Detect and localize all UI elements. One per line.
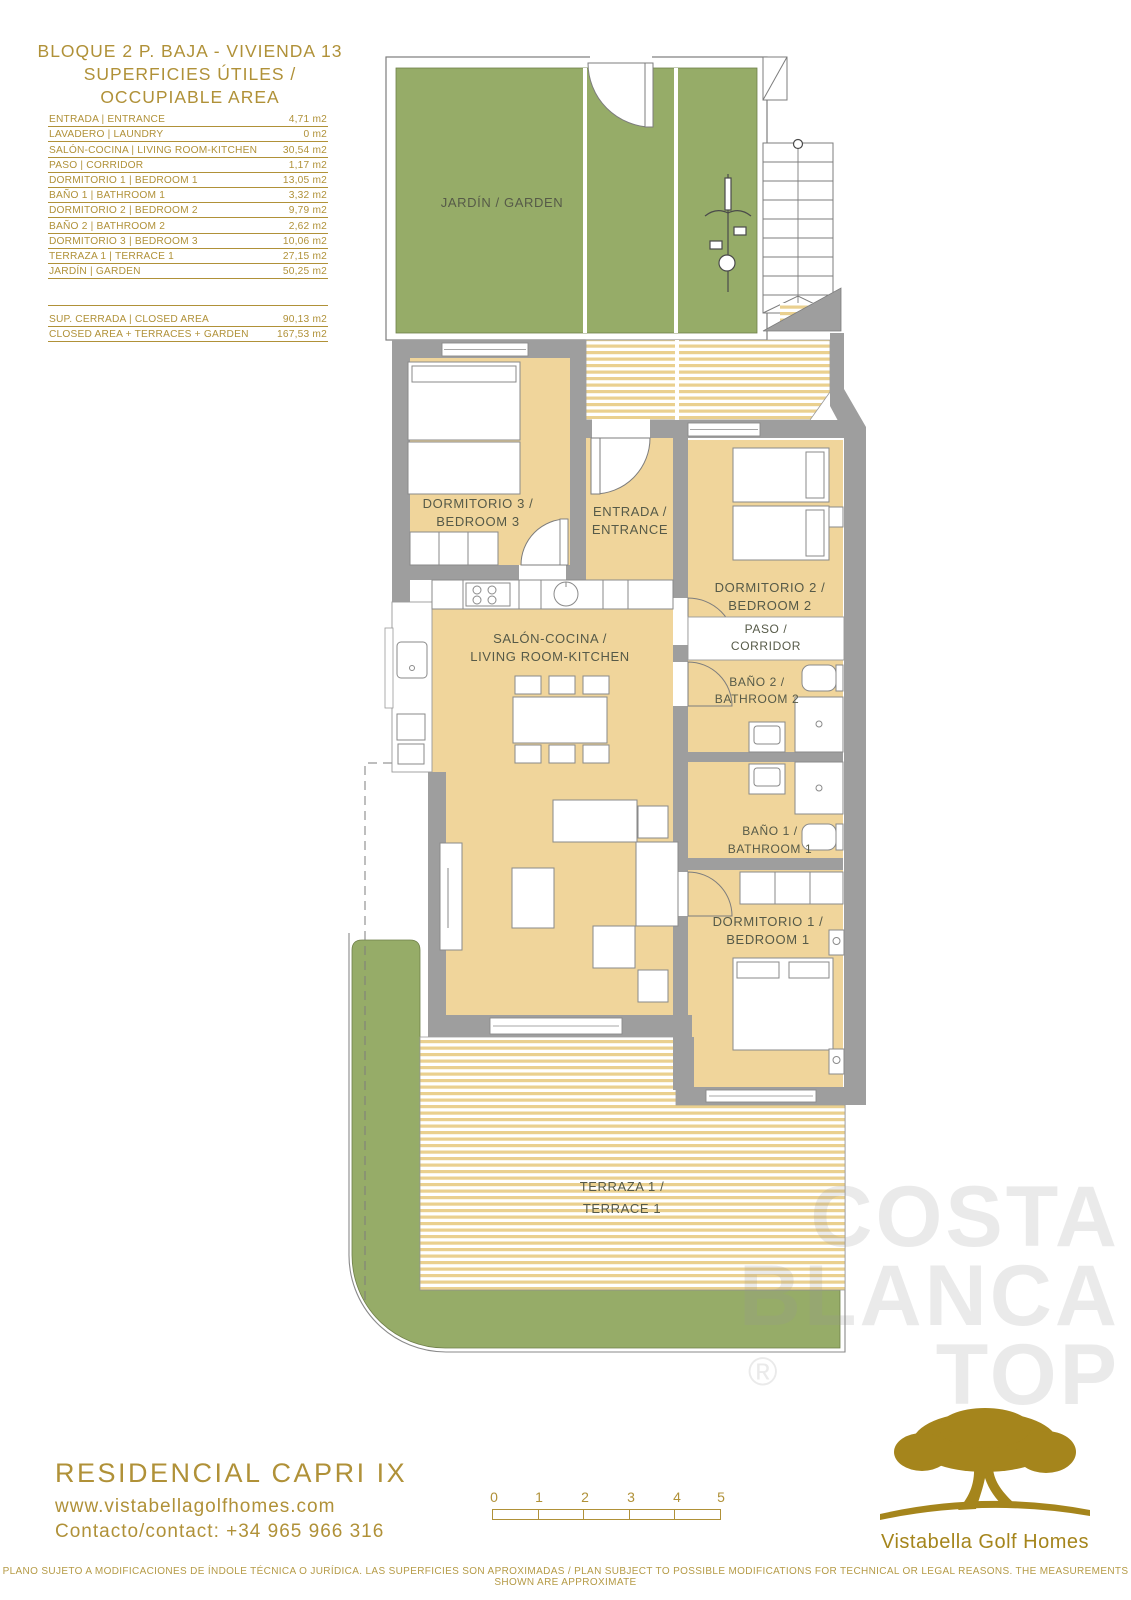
floorplan-page: BLOQUE 2 P. BAJA - VIVIENDA 13 SUPERFICI… — [0, 0, 1131, 1600]
scale-tick: 0 — [490, 1489, 498, 1505]
scale-bar-segments — [492, 1509, 721, 1520]
project-name: RESIDENCIAL CAPRI IX — [55, 1458, 407, 1489]
room-label-corridor: CORRIDOR — [731, 639, 801, 653]
scale-tick: 1 — [535, 1489, 543, 1505]
garden-divider — [674, 68, 678, 333]
footer-project-block: RESIDENCIAL CAPRI IX www.vistabellagolfh… — [55, 1458, 407, 1543]
kitchen-counter — [432, 580, 673, 609]
nightstand — [829, 507, 843, 527]
room-label-bedroom1: DORMITORIO 1 / — [713, 914, 824, 929]
sofa — [553, 800, 637, 842]
staircase — [763, 57, 841, 331]
room-label-bedroom3: DORMITORIO 3 / — [423, 496, 534, 511]
floor-plan: JARDÍN / GARDEN — [0, 0, 1131, 1600]
wardrobe — [410, 532, 498, 565]
window — [688, 423, 760, 436]
tv-unit — [440, 843, 462, 950]
wardrobe — [740, 872, 843, 904]
room-label-garden: JARDÍN / GARDEN — [441, 195, 563, 210]
room-label-terrace: TERRACE 1 — [583, 1201, 661, 1216]
room-label-bedroom3: BEDROOM 3 — [436, 514, 519, 529]
room-label-bedroom2: BEDROOM 2 — [728, 598, 811, 613]
room-label-living: LIVING ROOM-KITCHEN — [470, 649, 629, 664]
room-label-living: SALÓN-COCINA / — [493, 631, 607, 646]
coffee-table — [512, 868, 554, 928]
scale-tick: 5 — [717, 1489, 725, 1505]
contact-phone: Contacto/contact: +34 965 966 316 — [55, 1521, 407, 1543]
disclaimer-text: PLANO SUJETO A MODIFICACIONES DE ÍNDOLE … — [0, 1566, 1131, 1588]
scale-tick: 2 — [581, 1489, 589, 1505]
room-label-bedroom2: DORMITORIO 2 / — [715, 580, 826, 595]
scale-bar: 0 1 2 3 4 5 — [492, 1489, 723, 1523]
window — [442, 343, 528, 356]
room-label-entrance: ENTRADA / — [593, 504, 667, 519]
window — [706, 1090, 816, 1102]
sliding-door — [490, 1018, 622, 1034]
window — [385, 628, 393, 708]
dining-table — [513, 676, 609, 763]
garden-area: JARDÍN / GARDEN — [386, 52, 767, 340]
scale-tick: 4 — [673, 1489, 681, 1505]
room-label-bedroom1: BEDROOM 1 — [726, 932, 809, 947]
room-label-entrance: ENTRANCE — [592, 522, 668, 537]
room-label-bath2: BATHROOM 2 — [715, 692, 799, 706]
room-label-terrace: TERRAZA 1 / — [580, 1179, 665, 1194]
stove-icon — [466, 583, 510, 606]
bedroom1-furniture — [733, 872, 844, 1074]
toilet-icon — [802, 665, 836, 691]
room-label-bath1: BATHROOM 1 — [728, 842, 812, 856]
scale-tick: 3 — [627, 1489, 635, 1505]
brand-name: Vistabella Golf Homes — [862, 1531, 1108, 1554]
room-label-corridor: PASO / — [745, 622, 788, 636]
entrance-porch — [586, 340, 830, 420]
room-label-bath1: BAÑO 1 / — [742, 824, 798, 838]
website-url: www.vistabellagolfhomes.com — [55, 1496, 407, 1518]
brand-logo: Vistabella Golf Homes — [862, 1392, 1108, 1554]
tree-logo-icon — [862, 1392, 1108, 1524]
garden-divider — [583, 68, 587, 333]
room-label-bath2: BAÑO 2 / — [729, 675, 785, 689]
